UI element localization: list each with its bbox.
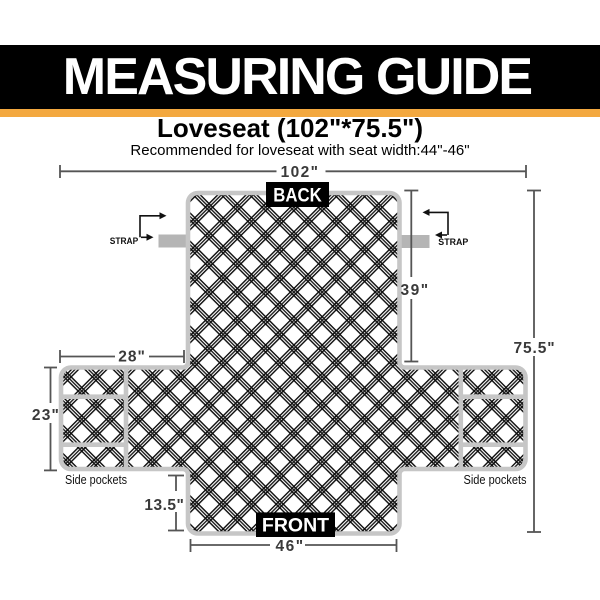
svg-text:75.5": 75.5" [513,340,555,357]
svg-text:13.5": 13.5" [144,497,184,514]
svg-text:46": 46" [275,538,304,555]
svg-text:23": 23" [32,407,60,424]
svg-text:Side pockets: Side pockets [464,472,527,487]
svg-text:FRONT: FRONT [262,515,329,537]
svg-text:28": 28" [118,349,146,366]
svg-text:102": 102" [281,164,320,181]
svg-text:Side pockets: Side pockets [65,472,127,487]
svg-text:BACK: BACK [273,186,322,207]
svg-text:STRAP: STRAP [438,237,468,247]
svg-text:39": 39" [400,282,429,299]
svg-text:STRAP: STRAP [110,236,139,246]
